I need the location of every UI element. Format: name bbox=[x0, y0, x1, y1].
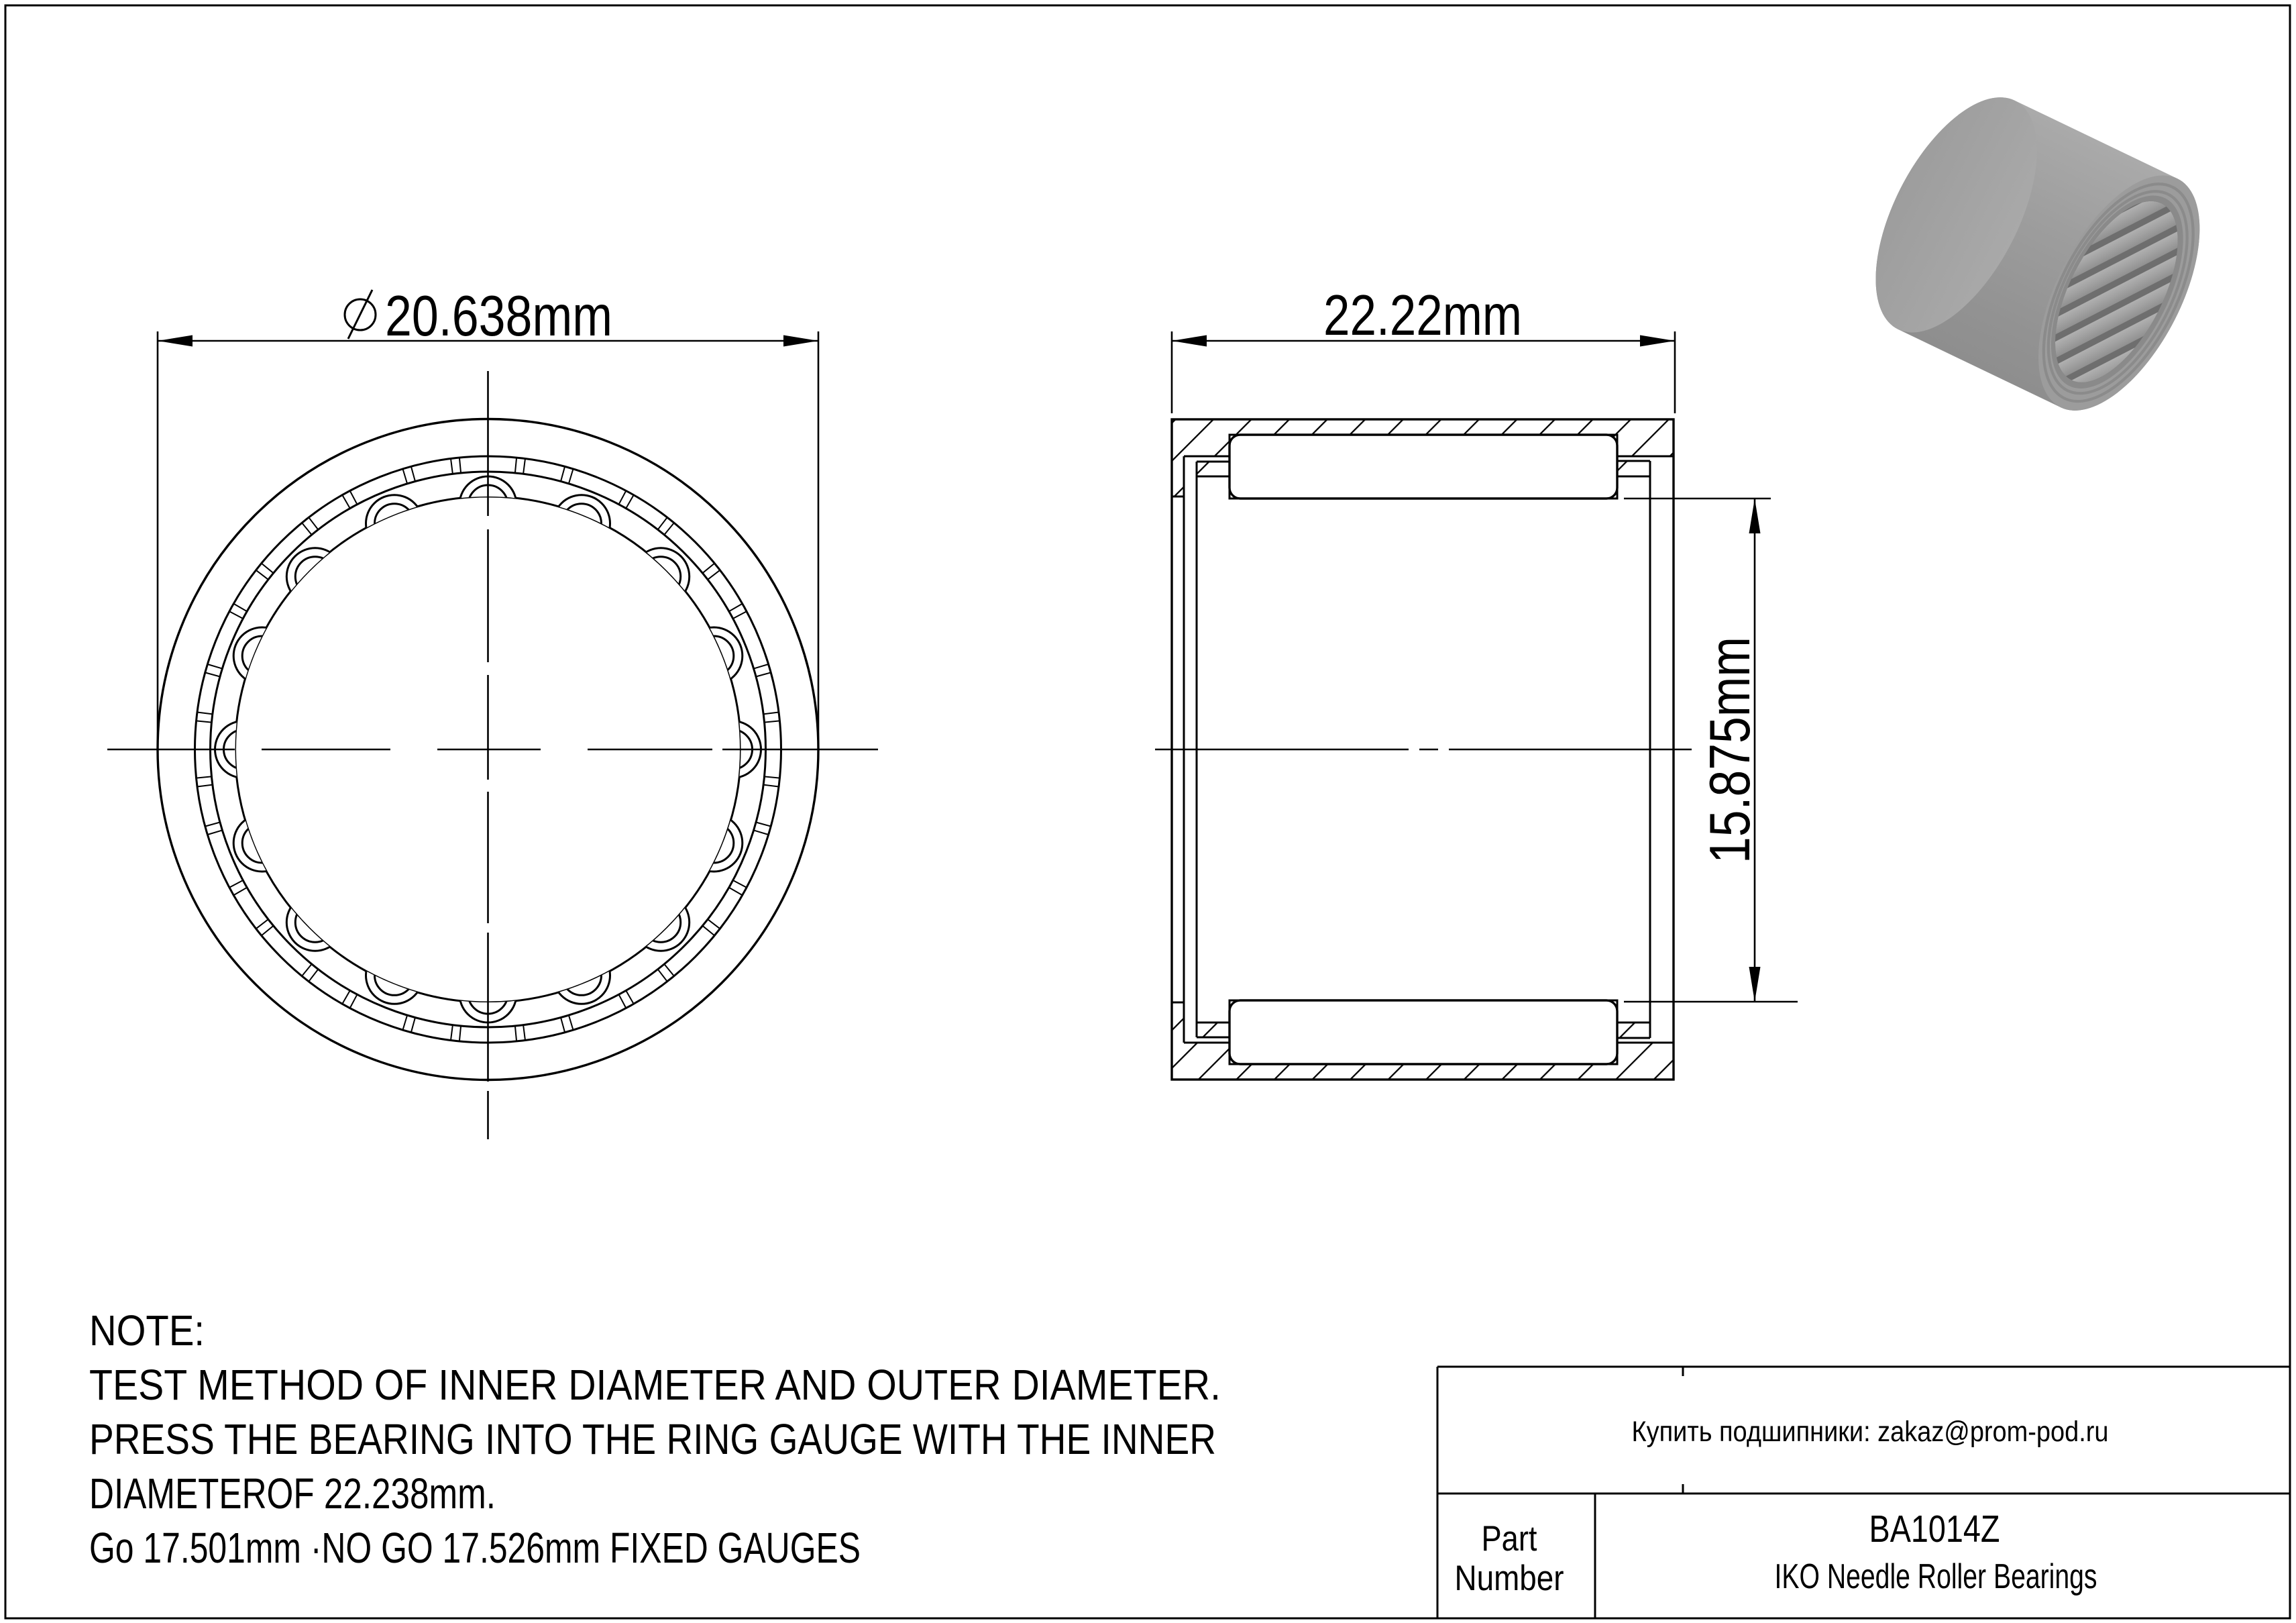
svg-text:DIAMETEROF 22.238mm.: DIAMETEROF 22.238mm. bbox=[89, 1469, 496, 1518]
svg-text:Number: Number bbox=[1455, 1559, 1564, 1598]
svg-text:IKO Needle Roller Bearings: IKO Needle Roller Bearings bbox=[1775, 1557, 2097, 1596]
svg-text:20.638mm: 20.638mm bbox=[385, 284, 612, 348]
svg-text:15.875mm: 15.875mm bbox=[1698, 637, 1762, 863]
svg-text:NOTE:: NOTE: bbox=[89, 1306, 205, 1355]
svg-text:BA1014Z: BA1014Z bbox=[1869, 1508, 2000, 1551]
svg-text:PRESS THE BEARING INTO THE RIN: PRESS THE BEARING INTO THE RING GAUGE WI… bbox=[89, 1415, 1216, 1463]
svg-text:TEST METHOD OF INNER DIAMETER: TEST METHOD OF INNER DIAMETER AND OUTER … bbox=[89, 1361, 1221, 1409]
svg-text:22.22mm: 22.22mm bbox=[1323, 284, 1522, 348]
svg-text:Купить подшипники: zakaz@prom-: Купить подшипники: zakaz@prom-pod.ru bbox=[1632, 1416, 2109, 1448]
svg-text:Go 17.501mm ·NO GO 17.526mm FI: Go 17.501mm ·NO GO 17.526mm FIXED GAUGES bbox=[89, 1524, 861, 1572]
svg-text:Part: Part bbox=[1482, 1519, 1537, 1559]
